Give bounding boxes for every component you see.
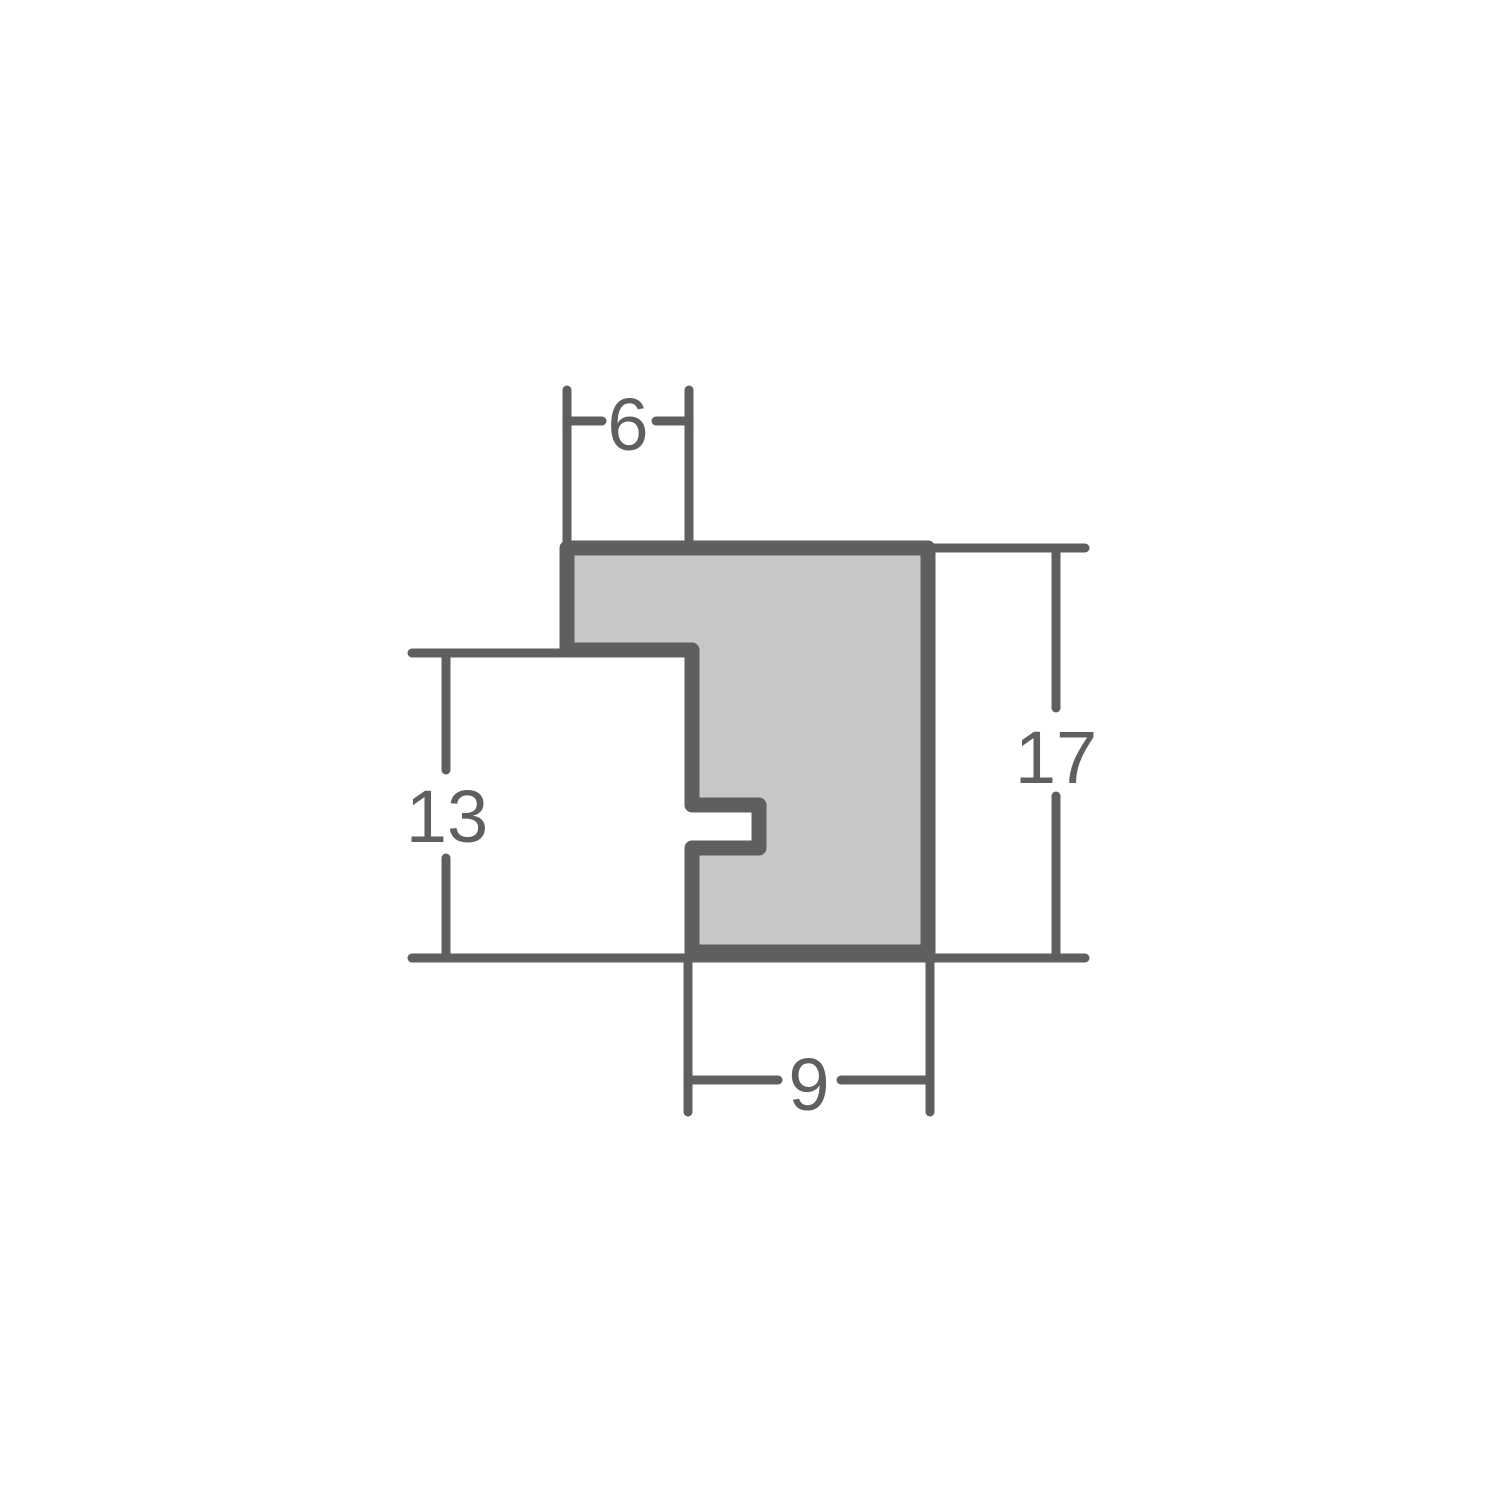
dimension-right-height: 17 xyxy=(934,548,1097,956)
dimension-left-height-label: 13 xyxy=(406,775,488,858)
moulding-profile-shape xyxy=(567,548,928,952)
drawing-canvas: 6 13 17 9 xyxy=(0,0,1500,1500)
dimension-top-width-label: 6 xyxy=(607,383,648,466)
dimension-bottom-width: 9 xyxy=(688,958,930,1126)
dimension-top-width: 6 xyxy=(567,383,689,550)
dimension-bottom-width-label: 9 xyxy=(788,1043,829,1126)
moulding-profile-diagram: 6 13 17 9 xyxy=(0,0,1500,1500)
dimension-left-height: 13 xyxy=(406,653,565,956)
dimension-right-height-label: 17 xyxy=(1015,716,1097,799)
